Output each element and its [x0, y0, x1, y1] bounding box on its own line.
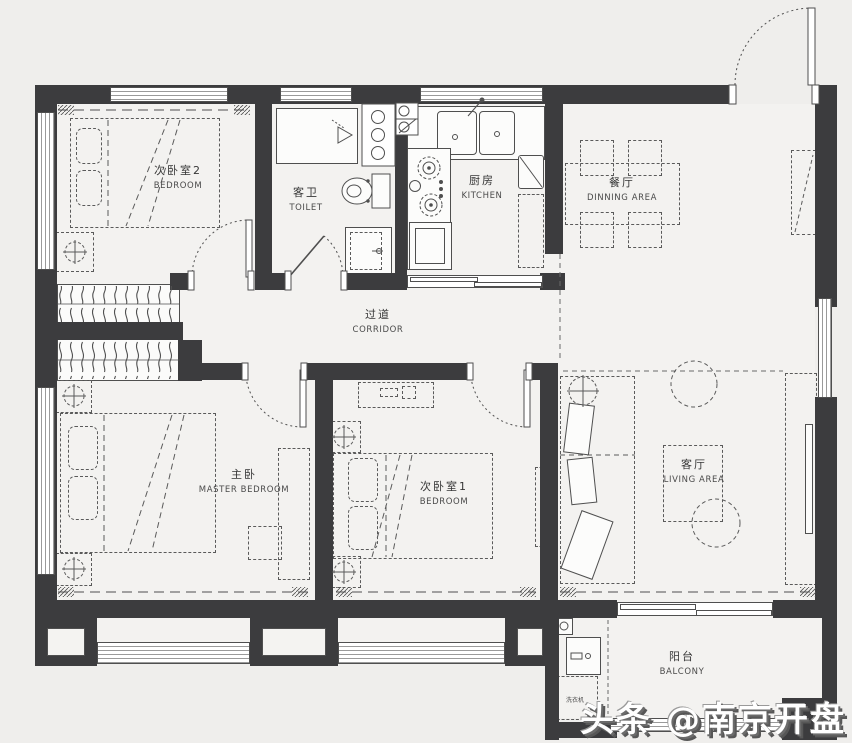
room-label-dining: 餐厅 DINNING AREA [587, 174, 657, 203]
master-stool [248, 526, 282, 560]
floor-bay-bedroom1 [338, 618, 505, 644]
master-label-zh: 主卧 [199, 466, 289, 482]
vanity-basin [350, 232, 382, 270]
wall-bedrooms-bottom [35, 600, 555, 618]
kitchen-label-en: KITCHEN [461, 191, 502, 201]
room-label-toilet: 客卫 TOILET [289, 184, 322, 213]
bay-pier-left [35, 618, 97, 666]
tv [805, 424, 813, 534]
floor-bay-master [97, 618, 250, 644]
window-master-left [37, 387, 55, 575]
bay-window-bedroom1 [338, 642, 505, 664]
bay-pier-inner [517, 628, 543, 656]
kitchen-sink-right [479, 111, 515, 155]
desk-item [402, 386, 416, 399]
corridor-label-en: CORRIDOR [353, 325, 404, 335]
wall-bedroom1-living [540, 363, 558, 603]
kitchen-label-zh: 厨房 [461, 172, 502, 188]
sofa-cushion [567, 457, 598, 505]
sliding-door-leaf [620, 604, 696, 610]
toilet-label-en: TOILET [289, 203, 322, 213]
balcony-sink [566, 637, 601, 675]
wall-bedroom1-top [333, 363, 471, 380]
window-bedroom2-left [37, 112, 55, 270]
room-label-bedroom2: 次卧室2 BEDROOM [154, 162, 203, 191]
floorplan: 次卧室2 BEDROOM 客卫 TOILET 厨房 KITCHEN 餐厅 DIN… [0, 0, 852, 743]
pillow [348, 458, 378, 502]
room-label-bedroom1: 次卧室1 BEDROOM [420, 478, 469, 507]
wall-kitchen-stub-right [540, 273, 565, 290]
wall-balcony-left [545, 600, 559, 740]
fridge [518, 155, 544, 189]
wall-bedroom2-door-stub [170, 273, 192, 290]
dining-chair [628, 212, 662, 248]
wall-balcony-right [822, 610, 837, 705]
kitchen-sliding-door [407, 275, 543, 288]
kitchen-tall-cabinet [518, 194, 544, 268]
room-label-kitchen: 厨房 KITCHEN [461, 172, 502, 201]
pillow [76, 128, 102, 164]
corridor-label-zh: 过道 [353, 306, 404, 322]
wardrobe-master [57, 339, 180, 381]
bay-pier-middle [250, 618, 338, 666]
dining-label-zh: 餐厅 [587, 174, 657, 190]
wall-bedroom2-toilet [255, 104, 272, 290]
bedroom2-label-en: BEDROOM [154, 181, 203, 191]
entry-shoe-cabinet [791, 150, 816, 235]
wall-top-dining [555, 85, 731, 104]
window-toilet-top [280, 87, 352, 102]
pillow [68, 476, 98, 520]
balcony-label-en: BALCONY [660, 667, 705, 677]
sliding-door-leaf [696, 610, 772, 616]
toilet-label-zh: 客卫 [289, 184, 322, 200]
room-label-master: 主卧 MASTER BEDROOM [199, 466, 289, 495]
wardrobe-bedroom2 [57, 284, 180, 324]
bay-pier-inner [47, 628, 85, 656]
master-label-en: MASTER BEDROOM [199, 485, 289, 495]
wall-toilet-stub-left [272, 273, 289, 290]
nightstand [56, 232, 94, 272]
bedroom2-label-zh: 次卧室2 [154, 162, 203, 178]
shower [276, 108, 358, 164]
desk-item [380, 388, 398, 397]
living-label-zh: 客厅 [664, 456, 725, 472]
window-kitchen-top [420, 87, 543, 102]
wall-master-bedroom1 [315, 363, 333, 603]
dining-chair [580, 212, 614, 248]
sliding-door-leaf [410, 277, 478, 282]
wall-toilet-kitchen [395, 104, 407, 290]
pillow [348, 506, 378, 550]
watermark: 头条 @南京开盘 [580, 692, 846, 741]
pillow [76, 170, 102, 206]
window-right-wall [818, 298, 832, 398]
kitchen-base-cabinet-inner [415, 228, 445, 264]
balcony-label-zh: 阳台 [660, 648, 705, 664]
dining-chair [580, 140, 614, 176]
bedroom1-label-en: BEDROOM [420, 497, 469, 507]
bedroom1-label-zh: 次卧室1 [420, 478, 469, 494]
bay-window-master [97, 642, 250, 664]
living-label-en: LIVING AREA [664, 475, 725, 485]
wall-right-upper [815, 85, 837, 307]
wall-corridor-master [198, 363, 246, 380]
balcony-sliding-door [617, 602, 773, 616]
dining-chair [628, 140, 662, 176]
room-label-corridor: 过道 CORRIDOR [353, 306, 404, 335]
wall-balcony-pier-left [555, 600, 617, 618]
wall-right-lower [815, 397, 837, 610]
room-label-living: 客厅 LIVING AREA [664, 456, 725, 485]
wall-closet-divider [35, 322, 183, 340]
room-label-balcony: 阳台 BALCONY [660, 648, 705, 677]
nightstand [56, 380, 92, 413]
nightstand [56, 553, 92, 586]
dining-label-en: DINNING AREA [587, 193, 657, 203]
sliding-door-leaf [474, 282, 542, 287]
pillow [68, 426, 98, 470]
window-bedroom2-top [110, 87, 228, 102]
bay-pier-inner [262, 628, 326, 656]
wall-kitchen-dining [545, 104, 563, 254]
